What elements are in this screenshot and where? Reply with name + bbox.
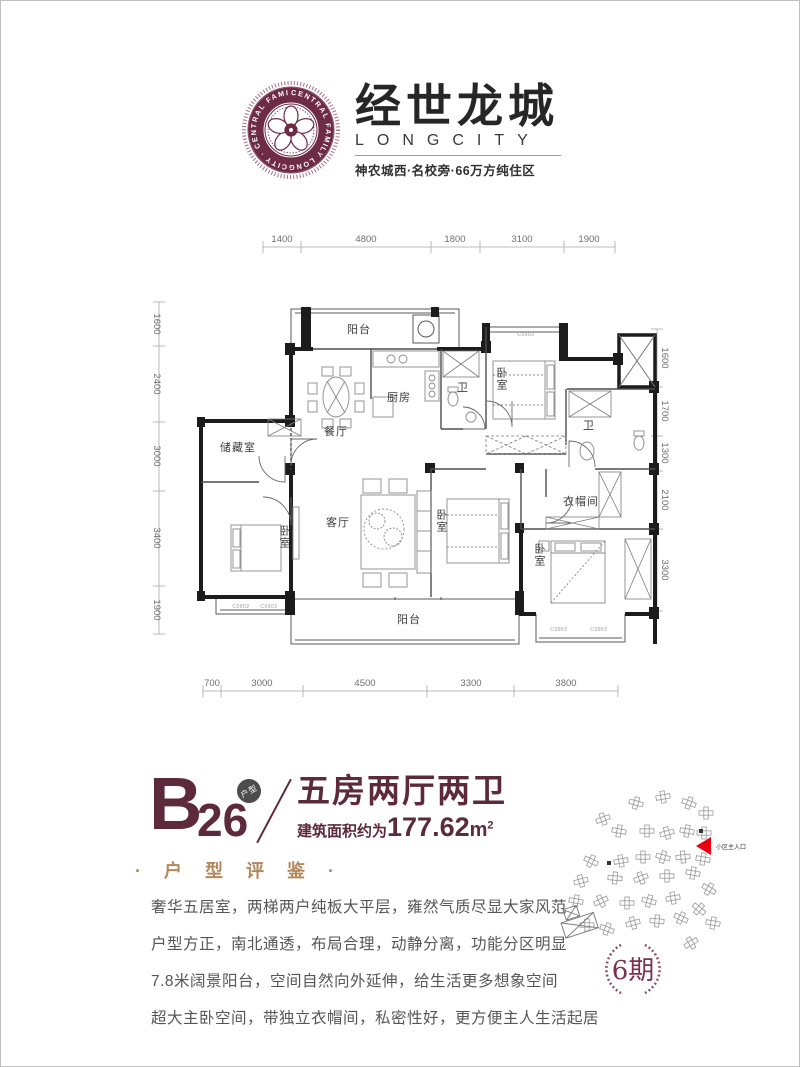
- svg-text:C0902: C0902: [260, 604, 277, 610]
- svg-text:4500: 4500: [354, 678, 375, 689]
- unit-main: 五房两厅两卫 建筑面积约为177.62m2: [297, 773, 507, 843]
- brand-name-cn: 经世龙城: [355, 82, 561, 130]
- room-bedroom-ne: 卧室: [495, 367, 508, 391]
- room-balcony-north: 阳台: [347, 322, 371, 336]
- svg-text:1700: 1700: [659, 400, 670, 421]
- brand-divider: [355, 155, 561, 156]
- unit-title: 五房两厅两卫: [297, 773, 507, 809]
- room-dining: 餐厅: [324, 424, 348, 438]
- phase-seal: 6期: [606, 945, 659, 993]
- svg-text:3100: 3100: [511, 234, 532, 245]
- room-bedroom-master: 卧室: [533, 543, 546, 567]
- svg-text:1300: 1300: [659, 442, 670, 463]
- wall-piers: [197, 307, 659, 619]
- room-kitchen: 厨房: [387, 391, 411, 404]
- unit-code: B 26 户型: [149, 773, 269, 853]
- review-heading: · 户 型 评 鉴 ·: [135, 857, 343, 883]
- svg-text:3300: 3300: [460, 678, 481, 689]
- siteplan-marker: [607, 861, 611, 865]
- shaft-box: [619, 335, 655, 387]
- svg-text:1900: 1900: [151, 599, 162, 620]
- siteplan-marker: [699, 829, 703, 833]
- svg-text:1600: 1600: [659, 347, 670, 368]
- flyer-page: CENTRAL FAMILY LONGCITY · CENTRAL FAMILY…: [0, 0, 800, 1067]
- brand-seal-icon: CENTRAL FAMILY LONGCITY · CENTRAL FAMILY…: [241, 80, 341, 180]
- unit-code-number: 26: [197, 797, 248, 843]
- room-storage: 储藏室: [220, 440, 256, 454]
- siteplan: 小区主入口 6期: [541, 773, 791, 1018]
- room-cloakroom: 衣帽间: [563, 494, 599, 508]
- svg-text:3400: 3400: [151, 527, 162, 548]
- svg-text:3000: 3000: [251, 678, 272, 689]
- entrance-label: 小区主入口: [716, 843, 746, 851]
- svg-text:C0902: C0902: [550, 627, 567, 633]
- svg-text:C0902: C0902: [590, 627, 607, 633]
- room-living: 客厅: [326, 515, 350, 529]
- floorplan: 1400 4800 1800 3100 1900 700 3000 4500 3…: [141, 229, 701, 711]
- unit-code-letter: B: [149, 767, 202, 841]
- room-bath-b: 卫: [583, 420, 595, 432]
- svg-text:3300: 3300: [659, 559, 670, 580]
- area-value: 177.62: [387, 812, 470, 842]
- room-bedroom-west: 卧室: [278, 525, 291, 549]
- svg-text:700: 700: [204, 678, 220, 689]
- siteplan-buildings: [568, 790, 721, 952]
- svg-text:C0902: C0902: [517, 332, 534, 338]
- svg-text:3000: 3000: [151, 445, 162, 466]
- brand-text-block: 经世龙城 LONGCITY 神农城西·名校旁·66万方纯住区: [355, 76, 561, 196]
- interior-walls: [201, 327, 655, 597]
- room-balcony-south: 阳台: [397, 612, 421, 626]
- svg-text:2100: 2100: [659, 489, 670, 510]
- svg-text:1900: 1900: [578, 234, 599, 245]
- room-bath-a: 卫: [457, 382, 469, 394]
- slash-divider: [256, 779, 292, 844]
- brand-name-en: LONGCITY: [355, 132, 561, 150]
- entrance-arrow-icon: [696, 837, 711, 855]
- svg-text:4800: 4800: [355, 234, 376, 245]
- svg-text:1600: 1600: [151, 313, 162, 334]
- svg-text:1800: 1800: [444, 234, 465, 245]
- area-label: 建筑面积约为: [297, 823, 387, 840]
- brand-header: CENTRAL FAMILY LONGCITY · CENTRAL FAMILY…: [241, 76, 571, 196]
- svg-text:2400: 2400: [151, 373, 162, 394]
- room-bedroom-middle: 卧室: [435, 509, 448, 533]
- unit-area: 建筑面积约为177.62m2: [297, 812, 507, 843]
- svg-text:C0902: C0902: [232, 604, 249, 610]
- phase-label: 6期: [612, 956, 655, 986]
- siteplan-complex: [557, 901, 598, 938]
- svg-text:3800: 3800: [555, 678, 576, 689]
- room-labels: 阳台 厨房 卫 卧室 卫 餐厅 储藏室 客厅 卧室 卧室 衣帽间 卧室 阳台: [220, 322, 599, 626]
- brand-tagline: 神农城西·名校旁·66万方纯住区: [355, 160, 561, 179]
- svg-text:1400: 1400: [271, 234, 292, 245]
- area-unit: m2: [470, 819, 494, 841]
